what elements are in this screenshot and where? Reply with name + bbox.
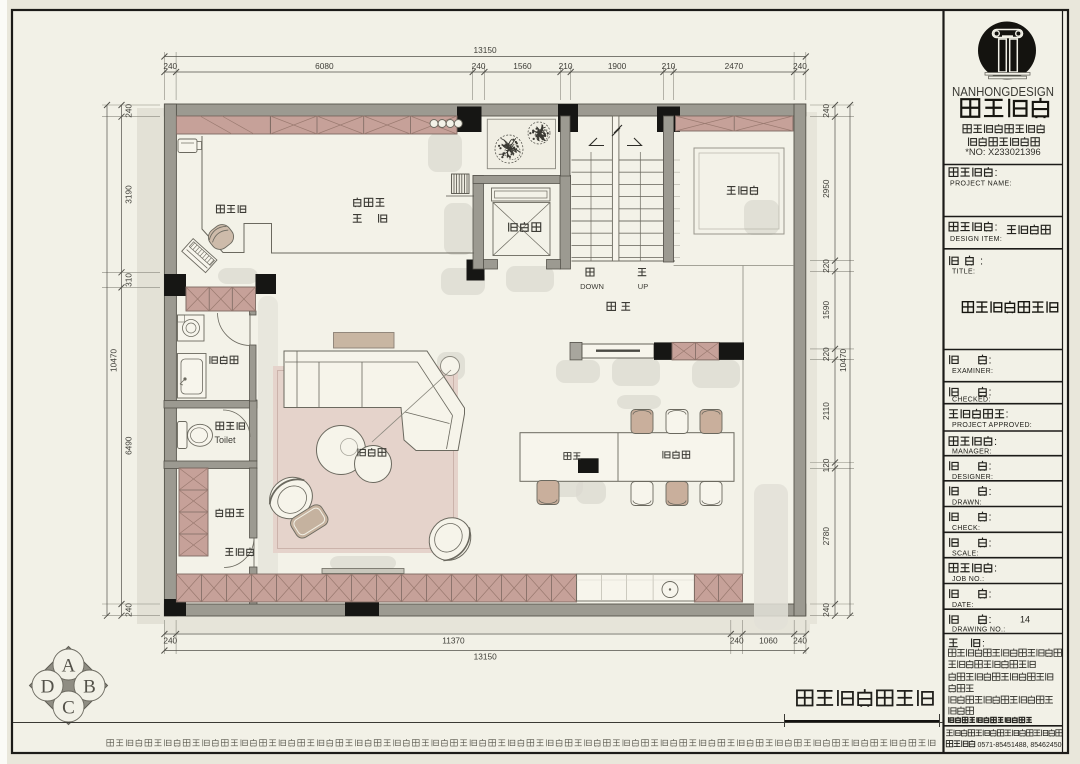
svg-text:DRAWING NO.:: DRAWING NO.: [952,627,1006,634]
svg-text:240: 240 [163,636,177,646]
svg-text:D: D [41,677,55,698]
svg-text:TITLE:: TITLE: [952,269,975,276]
svg-text:220: 220 [821,347,831,361]
svg-text:*NO: X233021396: *NO: X233021396 [965,147,1040,157]
svg-text:2950: 2950 [821,179,831,198]
svg-text::: : [989,537,992,549]
svg-text:240: 240 [793,636,807,646]
svg-text::: : [995,222,998,234]
svg-text:DESIGNER:: DESIGNER: [952,474,993,481]
svg-text::: : [980,256,983,268]
svg-text::: : [982,638,985,650]
svg-text:10470: 10470 [109,348,119,371]
svg-text:CHECKED:: CHECKED: [952,397,991,404]
svg-text:6490: 6490 [124,436,134,455]
svg-text:NANHONGDESIGN: NANHONGDESIGN [952,84,1054,99]
svg-text:240: 240 [124,103,134,117]
svg-text::: : [994,563,997,575]
svg-text:3190: 3190 [124,185,134,204]
svg-text::: : [989,614,992,626]
svg-text:2780: 2780 [821,527,831,546]
svg-text:CHECK:: CHECK: [952,525,980,532]
svg-text::: : [989,512,992,524]
svg-text:C: C [62,698,75,719]
svg-text:210: 210 [662,61,676,71]
svg-text:1060: 1060 [759,636,778,646]
svg-text:210: 210 [559,61,573,71]
svg-text:Toilet: Toilet [215,435,237,445]
svg-text:1590: 1590 [821,300,831,319]
svg-text:PROJECT NAME:: PROJECT NAME: [950,181,1012,188]
svg-text:11370: 11370 [442,636,465,646]
svg-text:240: 240 [124,603,134,617]
svg-text:2470: 2470 [725,61,744,71]
svg-text:240: 240 [472,61,486,71]
svg-text:MANAGER:: MANAGER: [952,449,992,456]
svg-text:120: 120 [821,458,831,472]
svg-text:13150: 13150 [474,45,497,55]
svg-text:DATE:: DATE: [952,602,974,609]
svg-text:B: B [83,677,96,698]
svg-text::: : [1006,409,1009,421]
svg-text::: : [989,461,992,473]
svg-text:UP: UP [638,282,648,291]
svg-text:6080: 6080 [315,61,334,71]
svg-text:240: 240 [730,636,744,646]
svg-text:10470: 10470 [838,348,848,371]
svg-text:240: 240 [821,603,831,617]
svg-text:240: 240 [821,103,831,117]
svg-text:DOWN: DOWN [580,282,604,291]
svg-text:1560: 1560 [513,61,532,71]
svg-text::: : [989,355,992,367]
svg-text:1900: 1900 [608,61,627,71]
svg-text:DESIGN ITEM:: DESIGN ITEM: [950,236,1002,243]
svg-text:PROJECT APPROVED:: PROJECT APPROVED: [952,422,1032,429]
svg-text::: : [989,486,992,498]
svg-text:2110: 2110 [821,402,831,420]
svg-text:220: 220 [821,259,831,273]
svg-text:JOB NO.:: JOB NO.: [952,576,984,583]
svg-text:310: 310 [124,273,134,287]
svg-text::: : [989,589,992,601]
svg-text:DRAWN:: DRAWN: [952,499,982,506]
svg-text:13150: 13150 [474,652,497,662]
svg-text:240: 240 [163,61,177,71]
svg-text:EXAMINER:: EXAMINER: [952,368,993,375]
svg-text:14: 14 [1020,615,1030,625]
svg-text:0571-85451488, 85462450: 0571-85451488, 85462450 [978,740,1062,749]
svg-text::: : [994,436,997,448]
svg-text:SCALE:: SCALE: [952,551,979,558]
svg-text:A: A [62,656,76,677]
svg-text:240: 240 [793,61,807,71]
svg-text::: : [995,167,998,179]
